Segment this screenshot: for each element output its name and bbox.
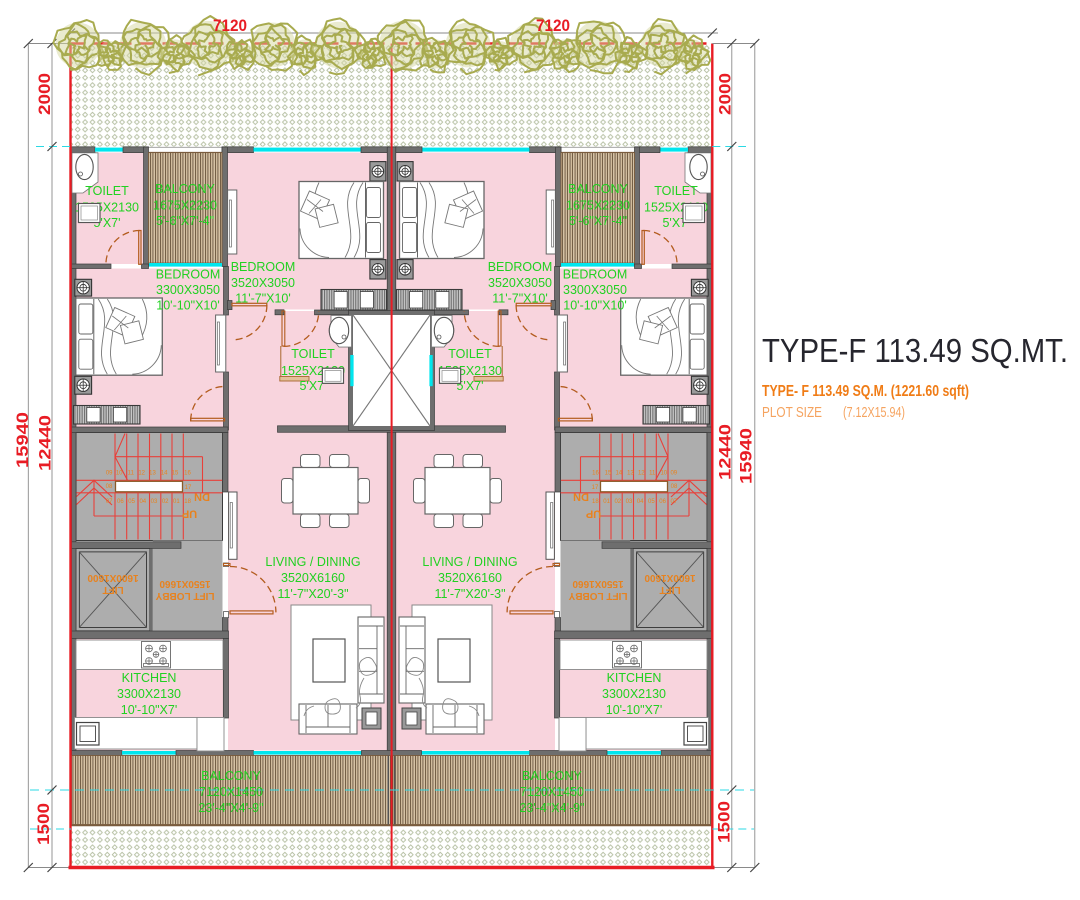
svg-text:08: 08 [106, 484, 113, 490]
svg-text:BEDROOM: BEDROOM [231, 260, 296, 274]
svg-text:08: 08 [671, 484, 678, 490]
svg-text:7120: 7120 [213, 16, 247, 35]
svg-text:01: 01 [603, 499, 610, 505]
svg-text:17: 17 [592, 485, 599, 491]
svg-text:TOILET: TOILET [85, 184, 129, 198]
svg-text:03: 03 [626, 499, 633, 505]
svg-text:TYPE-F 113.49 SQ.MT.: TYPE-F 113.49 SQ.MT. [762, 332, 1068, 369]
svg-text:BALCONY: BALCONY [201, 769, 261, 783]
svg-text:05: 05 [648, 499, 655, 505]
svg-text:7120: 7120 [536, 16, 570, 35]
svg-text:BALCONY: BALCONY [522, 769, 582, 783]
svg-text:10: 10 [660, 471, 667, 477]
svg-text:3520X6160: 3520X6160 [438, 571, 502, 585]
svg-text:12440: 12440 [36, 415, 55, 471]
svg-text:12: 12 [638, 471, 645, 477]
svg-text:DN: DN [194, 491, 210, 503]
svg-text:12440: 12440 [716, 424, 735, 480]
svg-text:06: 06 [117, 499, 124, 505]
svg-text:BEDROOM: BEDROOM [156, 268, 221, 282]
svg-text:BEDROOM: BEDROOM [488, 260, 553, 274]
svg-text:15: 15 [605, 471, 612, 477]
svg-text:1550X1660: 1550X1660 [159, 578, 211, 589]
svg-text:LIFT LOBBY: LIFT LOBBY [568, 590, 627, 601]
svg-text:BALCONY: BALCONY [568, 182, 628, 196]
svg-text:PLOT SIZE: PLOT SIZE [762, 405, 822, 421]
svg-text:03: 03 [151, 499, 158, 505]
svg-text:2000: 2000 [35, 73, 54, 115]
svg-text:LIFT: LIFT [659, 584, 680, 595]
svg-text:BALCONY: BALCONY [155, 182, 215, 196]
svg-text:5'-6"X7'-4": 5'-6"X7'-4" [156, 214, 214, 228]
svg-text:02: 02 [162, 499, 169, 505]
svg-text:16: 16 [184, 471, 191, 477]
svg-text:18: 18 [592, 499, 599, 505]
svg-text:3520X6160: 3520X6160 [281, 571, 345, 585]
svg-text:10'-10"X7': 10'-10"X7' [121, 703, 177, 717]
svg-text:15: 15 [172, 471, 179, 477]
svg-text:10'-10"X10': 10'-10"X10' [156, 299, 219, 313]
svg-text:10'-10"X7': 10'-10"X7' [606, 703, 662, 717]
svg-text:23'-4"X4'-9": 23'-4"X4'-9" [198, 801, 263, 815]
svg-text:7120X1450: 7120X1450 [520, 785, 584, 799]
svg-text:KITCHEN: KITCHEN [607, 671, 662, 685]
svg-text:07: 07 [106, 499, 113, 505]
svg-text:18: 18 [184, 499, 191, 505]
svg-text:1600X1600: 1600X1600 [87, 572, 139, 583]
svg-text:13: 13 [149, 471, 156, 477]
svg-text:11'-7"X20'-3": 11'-7"X20'-3" [277, 587, 348, 601]
svg-text:06: 06 [659, 499, 666, 505]
svg-text:15940: 15940 [13, 412, 32, 468]
svg-text:1600X1600: 1600X1600 [644, 572, 696, 583]
svg-text:3300X2130: 3300X2130 [117, 687, 181, 701]
svg-text:1550X1660: 1550X1660 [572, 578, 624, 589]
svg-text:05: 05 [128, 499, 135, 505]
svg-text:23'-4"X4'-9": 23'-4"X4'-9" [519, 801, 584, 815]
svg-text:04: 04 [139, 499, 146, 505]
svg-text:TOILET: TOILET [654, 184, 698, 198]
svg-text:07: 07 [670, 499, 677, 505]
svg-text:02: 02 [614, 499, 621, 505]
svg-text:13: 13 [627, 471, 634, 477]
svg-text:7120X1450: 7120X1450 [199, 785, 263, 799]
svg-text:3520X3050: 3520X3050 [231, 276, 295, 290]
svg-text:11'-7"X20'-3": 11'-7"X20'-3" [434, 587, 505, 601]
svg-text:1675X2230: 1675X2230 [153, 199, 217, 213]
svg-text:TYPE- F 113.49 SQ.M. (1221.60: TYPE- F 113.49 SQ.M. (1221.60 sqft) [762, 383, 969, 400]
svg-text:UP: UP [182, 508, 197, 520]
svg-text:1500: 1500 [715, 801, 734, 843]
svg-text:(7.12X15.94): (7.12X15.94) [843, 405, 905, 421]
svg-text:04: 04 [637, 499, 644, 505]
svg-text:2000: 2000 [716, 73, 735, 115]
svg-text:3520X3050: 3520X3050 [488, 276, 552, 290]
svg-text:DN: DN [573, 491, 589, 503]
svg-text:16: 16 [592, 471, 599, 477]
svg-text:09: 09 [670, 471, 677, 477]
svg-text:TOILET: TOILET [448, 347, 492, 361]
svg-text:10: 10 [116, 471, 123, 477]
svg-text:14: 14 [161, 471, 168, 477]
svg-text:5'-6"X7'-4": 5'-6"X7'-4" [569, 214, 627, 228]
svg-text:14: 14 [615, 471, 622, 477]
svg-text:11: 11 [649, 471, 656, 477]
svg-text:11'-7"X10': 11'-7"X10' [235, 292, 291, 306]
svg-text:15940: 15940 [737, 428, 756, 484]
svg-text:LIFT LOBBY: LIFT LOBBY [155, 590, 214, 601]
svg-text:17: 17 [185, 485, 192, 491]
svg-text:3300X2130: 3300X2130 [602, 687, 666, 701]
svg-text:KITCHEN: KITCHEN [122, 671, 177, 685]
svg-text:LIFT: LIFT [102, 584, 123, 595]
svg-text:UP: UP [586, 508, 601, 520]
svg-text:11'-7"X10': 11'-7"X10' [492, 292, 548, 306]
svg-text:10'-10"X10': 10'-10"X10' [563, 299, 626, 313]
svg-text:01: 01 [173, 499, 180, 505]
svg-text:BEDROOM: BEDROOM [563, 268, 628, 282]
svg-text:11: 11 [128, 471, 135, 477]
svg-text:LIVING / DINING: LIVING / DINING [422, 555, 517, 569]
svg-text:3300X3050: 3300X3050 [563, 283, 627, 297]
svg-text:1675X2230: 1675X2230 [566, 199, 630, 213]
svg-text:12: 12 [138, 471, 145, 477]
svg-text:3300X3050: 3300X3050 [156, 283, 220, 297]
svg-text:1500: 1500 [34, 803, 53, 845]
svg-text:LIVING / DINING: LIVING / DINING [265, 555, 360, 569]
svg-text:09: 09 [106, 471, 113, 477]
svg-text:TOILET: TOILET [291, 347, 335, 361]
